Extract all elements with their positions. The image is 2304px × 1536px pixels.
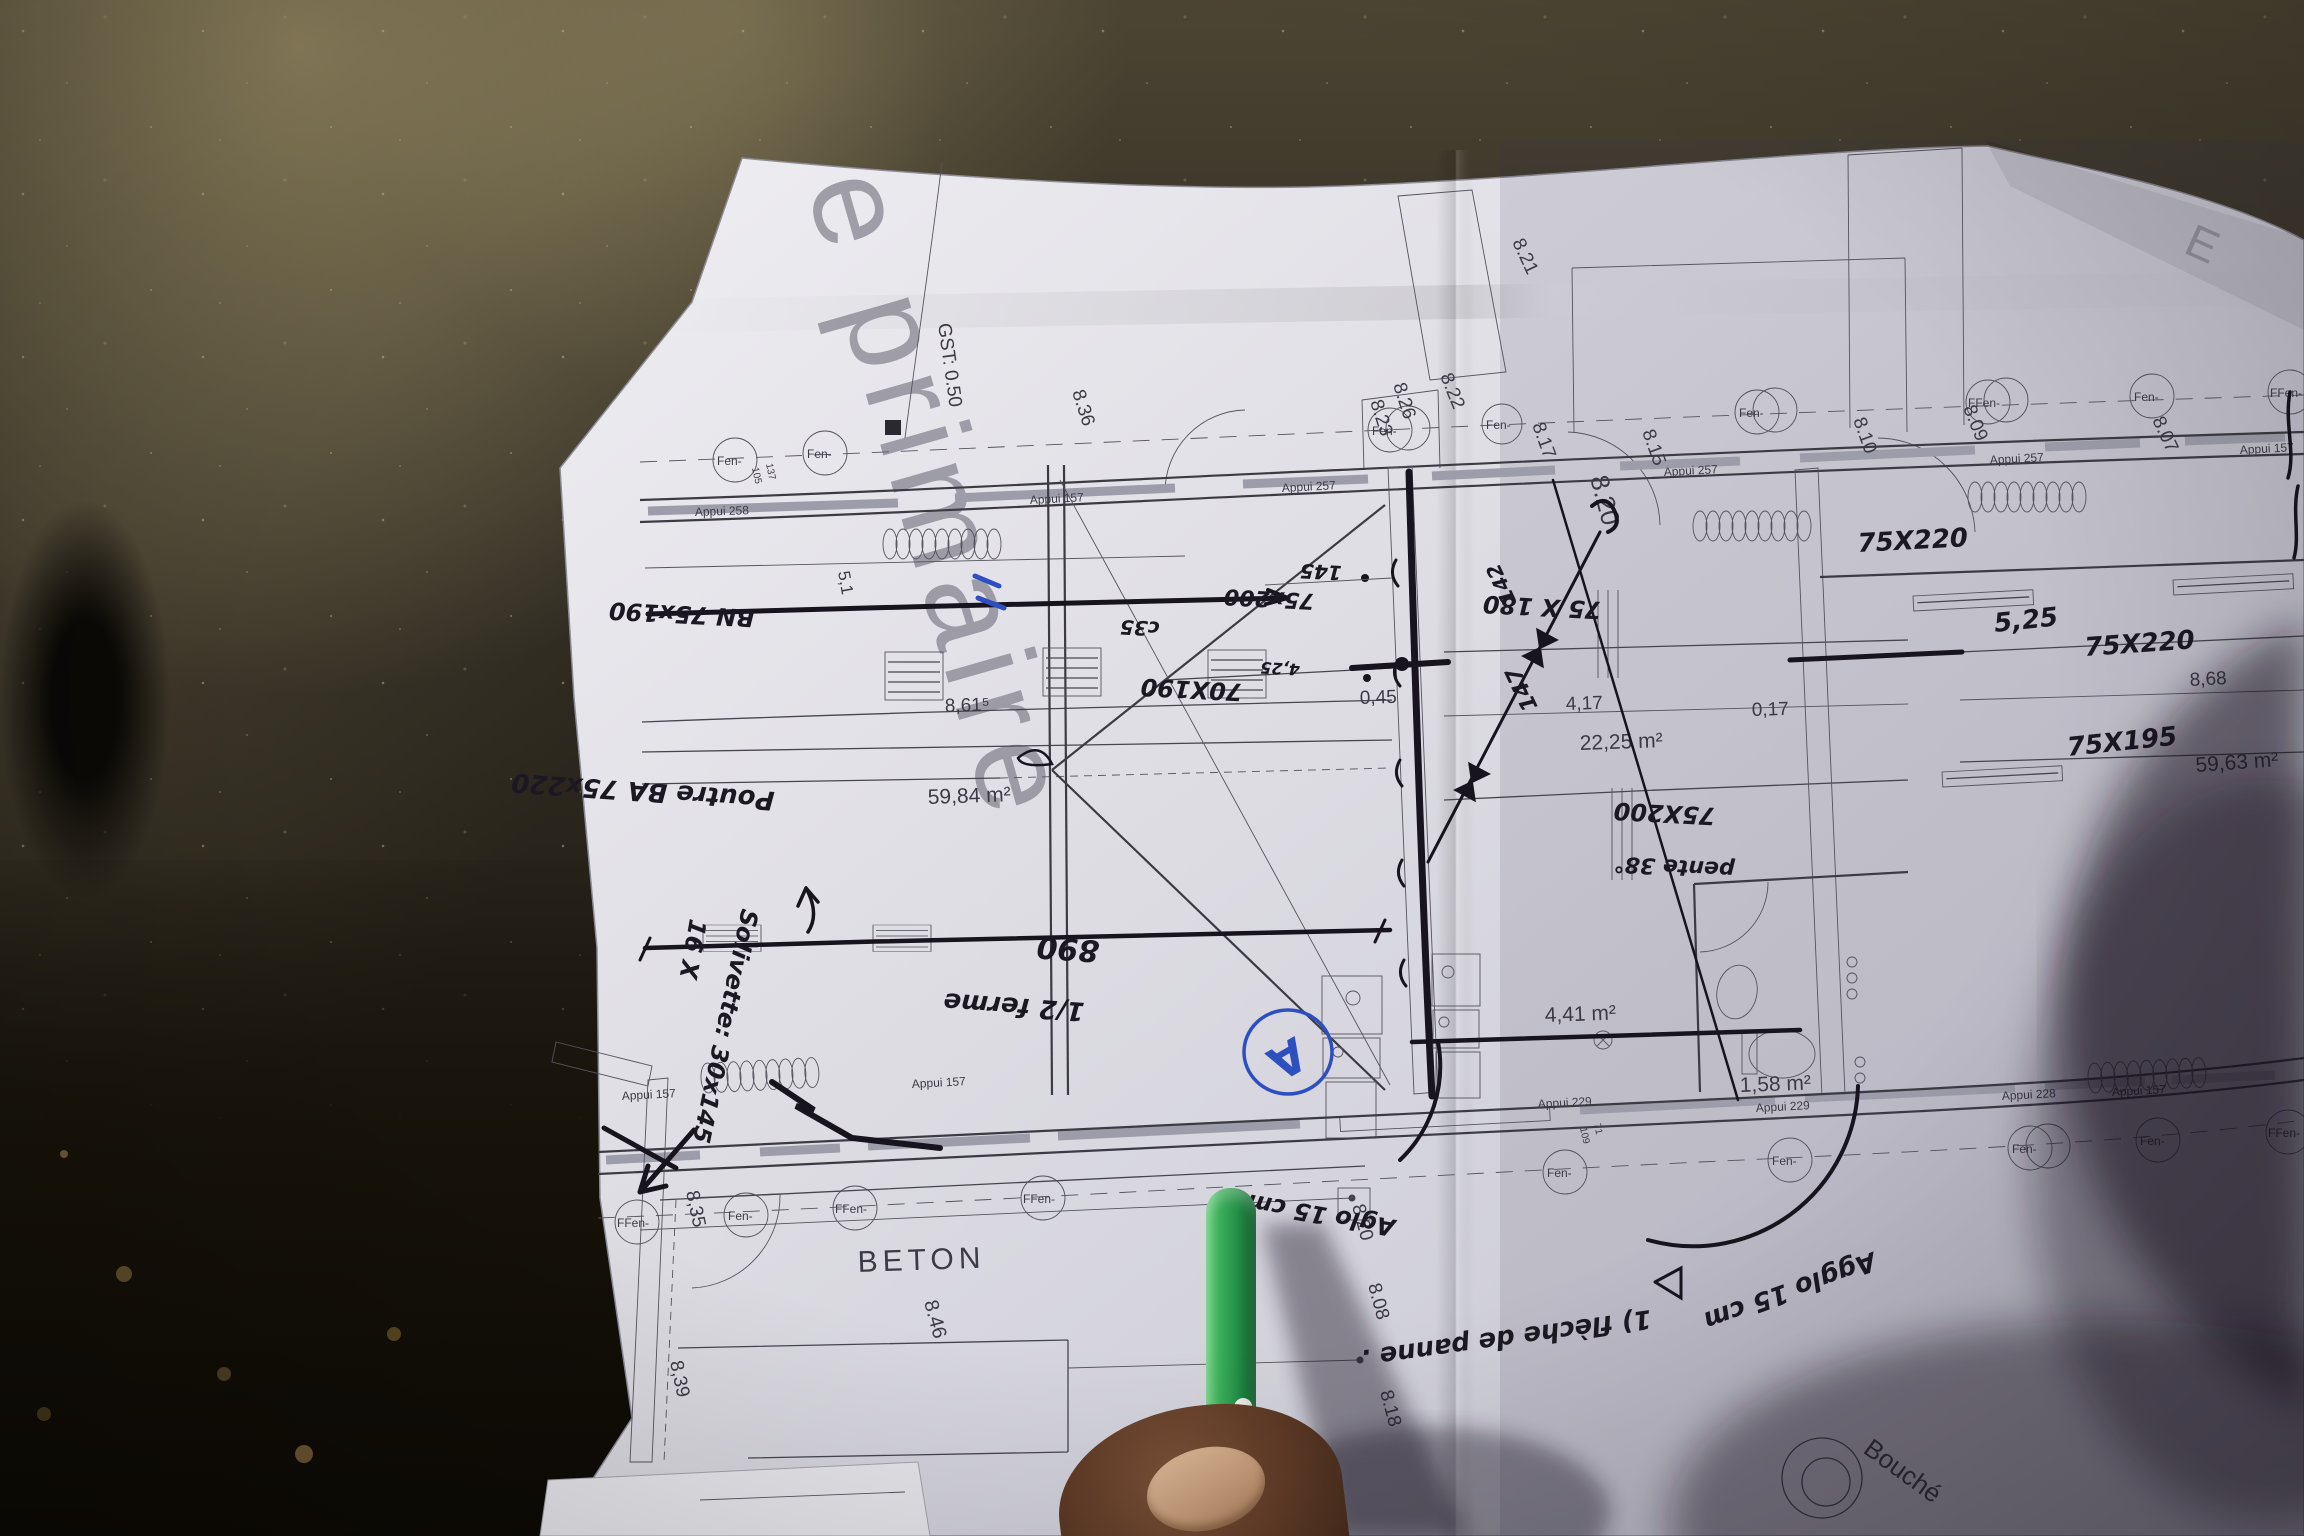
hw-890: 890 (1036, 929, 1101, 968)
ffen-label: FFen- (835, 1202, 867, 1216)
hw-70x190: 70X190 (1140, 673, 1243, 706)
len-045: 0,45 (1359, 687, 1397, 709)
fen-label: Fen- (1739, 406, 1764, 420)
hw-c35: c35 (1119, 615, 1160, 641)
area-158: 1,58 m² (1739, 1072, 1811, 1097)
appui-label: Appui 258 (695, 503, 750, 519)
beton-label: BETON (857, 1242, 986, 1279)
fen-label: Fen- (1547, 1166, 1572, 1180)
len-017: 0,17 (1751, 699, 1789, 721)
len-861: 8,61⁵ (944, 694, 990, 717)
ffen-label: FFen- (1023, 1192, 1055, 1206)
paper-crease-vertical (1436, 150, 1474, 1536)
appui-label: Appui 157 (621, 1086, 676, 1103)
fen-label: Fen- (807, 447, 832, 461)
ffen-label: FFen- (617, 1216, 649, 1230)
appui-label: Appui 229 (1755, 1098, 1810, 1115)
hw-145: 145 (1299, 559, 1342, 585)
appui-label: Appui 157 (2239, 440, 2294, 457)
fen-label: Fen- (728, 1209, 753, 1223)
len-51: 5,1 (834, 569, 857, 596)
appui-label: Appui 257 (1281, 478, 1336, 495)
fen-label: Fen- (1486, 418, 1511, 432)
hw-75x220a: 75X220 (1857, 523, 1969, 559)
hw-425: 4,25 (1260, 658, 1301, 679)
appui-label: Appui 229 (1537, 1094, 1592, 1111)
appui-label: Appui 257 (1663, 462, 1718, 479)
photo-scene: e primaire E Fen- Fen- (0, 0, 2304, 1536)
ffen-label: FFen- (2270, 386, 2302, 400)
len-417: 4,17 (1565, 693, 1603, 715)
fen-label: Fen- (717, 454, 742, 468)
appui-label: Appui 257 (1989, 450, 2044, 467)
hw-75x200a: 75x200 (1223, 583, 1315, 613)
blueprint-photo-svg: e primaire E Fen- Fen- (0, 0, 2304, 1536)
hw-75x200b: 75X200 (1613, 797, 1716, 830)
area-441: 4,41 m² (1544, 1002, 1616, 1027)
appui-label: Appui 157 (1029, 490, 1084, 507)
survey-mark (885, 420, 901, 435)
fen-label: Fen- (1772, 1154, 1797, 1168)
area-5984: 59,84 m² (927, 783, 1011, 809)
area-2225: 22,25 m² (1579, 729, 1663, 755)
fen-label: Fen- (2134, 390, 2159, 404)
appui-label: Appui 157 (911, 1074, 966, 1091)
